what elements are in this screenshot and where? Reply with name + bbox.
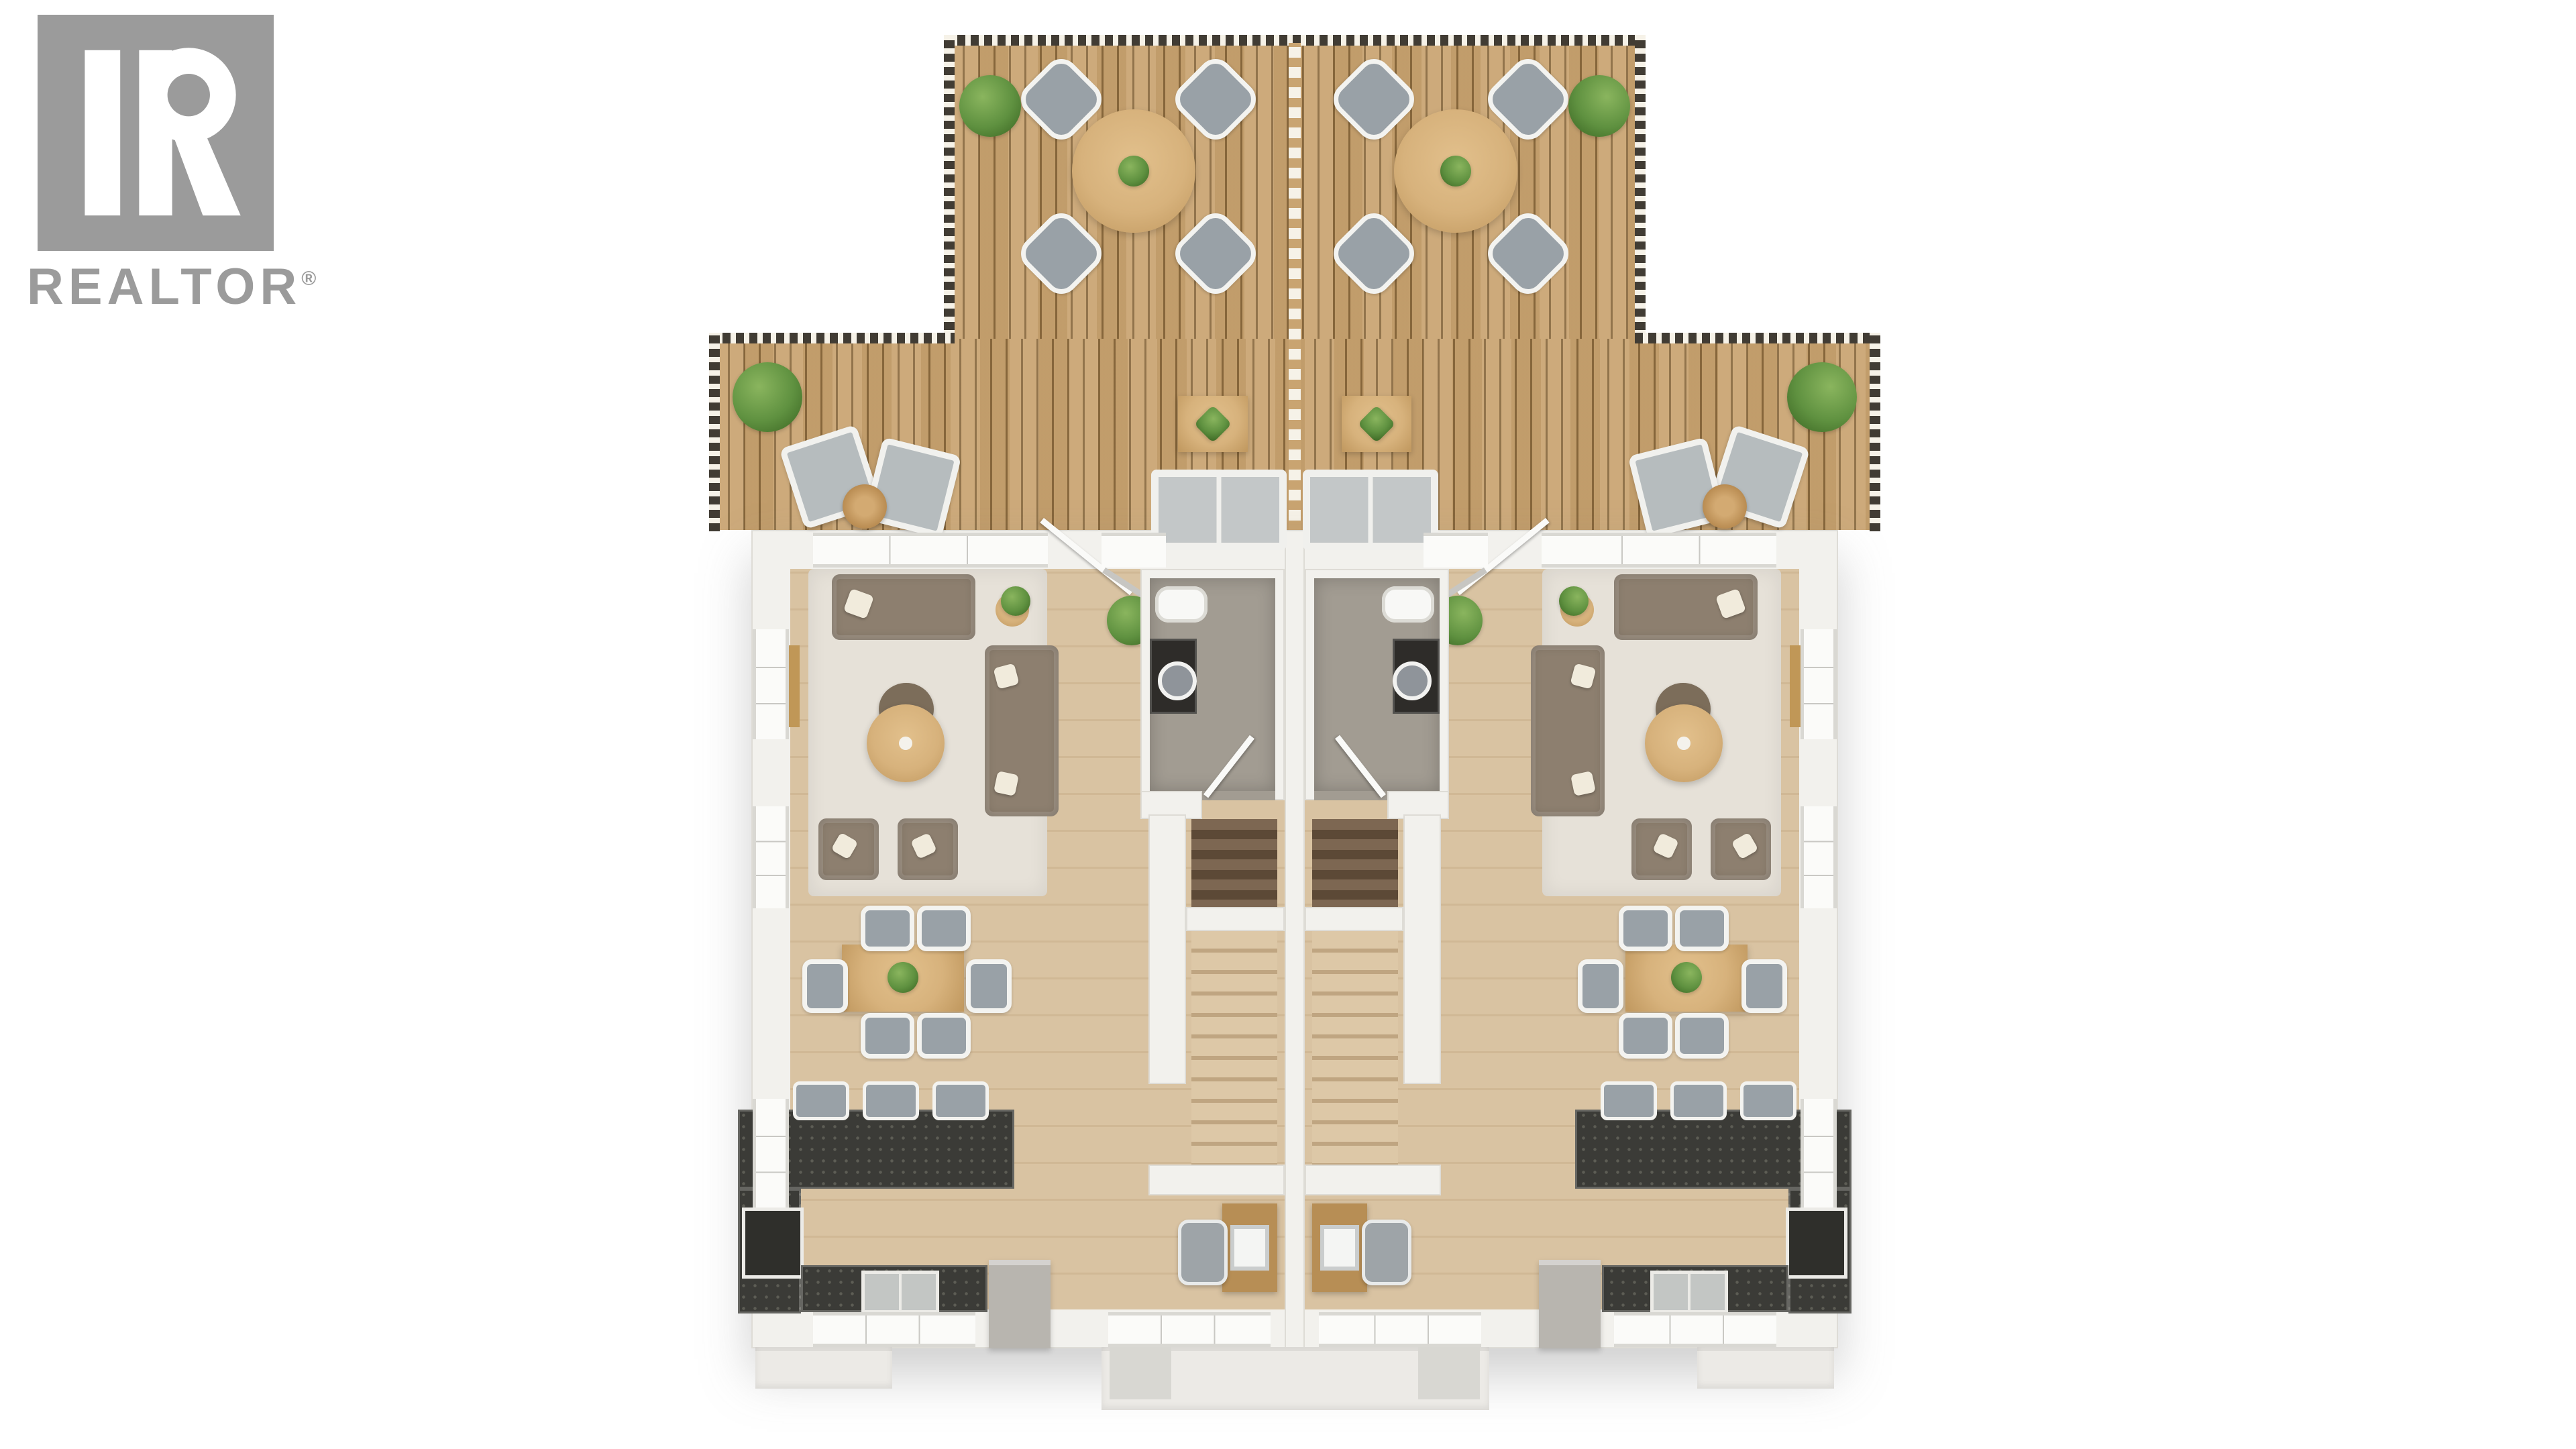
- living-room-window: [1542, 533, 1776, 568]
- deck-entry-door-opening: [1424, 533, 1488, 568]
- front-door: [1319, 1312, 1481, 1347]
- stair-flight-upper: [1312, 819, 1398, 908]
- toilet: [1382, 586, 1434, 623]
- bar-stool: [1740, 1081, 1796, 1120]
- side-stoop: [1697, 1347, 1834, 1389]
- deck-chair: [1326, 206, 1421, 301]
- vanity-sink: [1393, 661, 1432, 700]
- balcony-door-leaf: [1790, 645, 1801, 727]
- dining-chair: [1741, 959, 1787, 1013]
- bar-stool: [1601, 1081, 1657, 1120]
- porch-step-pad: [1418, 1347, 1480, 1399]
- side-window: [1801, 806, 1837, 908]
- stair-wall-outer: [1403, 814, 1441, 1084]
- dining-chair: [1619, 906, 1672, 951]
- deck-wicker-table: [1703, 484, 1747, 529]
- kitchen-window: [1614, 1312, 1776, 1347]
- dining-table-plant: [1671, 962, 1702, 993]
- office-chair: [1362, 1220, 1411, 1285]
- bar-stool: [1670, 1081, 1727, 1120]
- coffee-table-decor: [1677, 737, 1690, 750]
- laptop: [1320, 1225, 1359, 1271]
- balcony-door-opening: [1801, 629, 1837, 739]
- dining-chair: [1619, 1013, 1672, 1059]
- kitchen-sink: [1786, 1207, 1847, 1279]
- deck-outdoor-sofa: [1303, 470, 1438, 550]
- sofa-pillow: [1570, 771, 1596, 796]
- deck-corner-plant: [1568, 75, 1630, 137]
- side-table-plant: [1559, 586, 1589, 616]
- stove: [1650, 1271, 1728, 1313]
- dining-chair: [1675, 1013, 1729, 1059]
- stair-landing-wall: [1305, 907, 1403, 931]
- stair-wall-bottom: [1305, 1165, 1441, 1195]
- deck-wing-plant: [1787, 362, 1857, 432]
- side-window: [1801, 1099, 1837, 1207]
- stair-flight-lower: [1312, 931, 1398, 1165]
- dining-chair: [1675, 906, 1729, 951]
- fridge: [1539, 1260, 1601, 1348]
- deck-table-plant: [1440, 156, 1471, 186]
- dining-chair: [1578, 959, 1623, 1013]
- floor-plan-page: REALTOR®: [0, 0, 2576, 1449]
- unit-right: [13, 0, 2576, 1449]
- deck-chair: [1481, 206, 1575, 301]
